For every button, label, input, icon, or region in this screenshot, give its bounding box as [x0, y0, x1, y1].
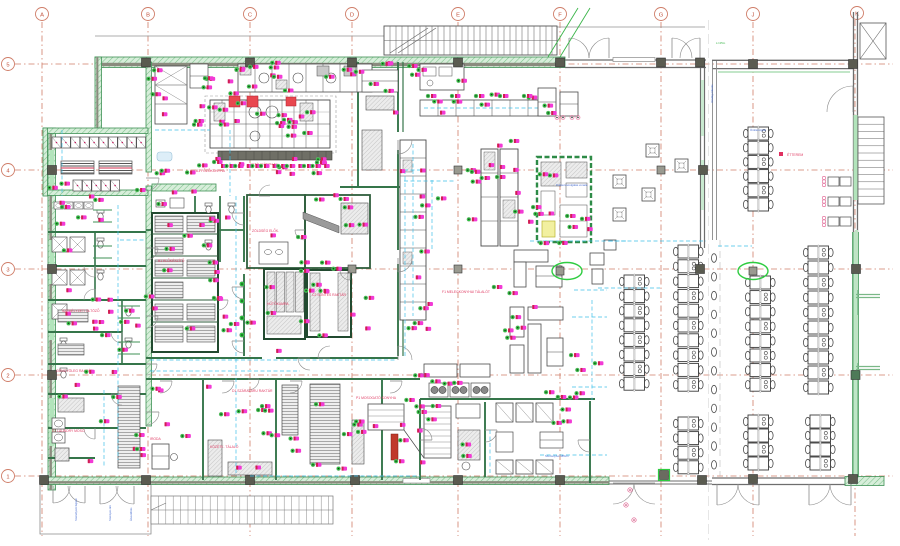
svg-text:1: 1 [6, 474, 9, 480]
svg-text:P1 MOSOGATÓ KONYHA: P1 MOSOGATÓ KONYHA [356, 395, 397, 400]
svg-text:B: B [146, 12, 150, 18]
svg-text:Vendég érkezés: Vendég érkezés [710, 84, 714, 103]
svg-text:3: 3 [6, 267, 9, 273]
svg-text:Pultos kiszolgálás vonala: Pultos kiszolgálás vonala [556, 183, 588, 187]
svg-text:F1 MELEGKONYHAI TÁLALÓT: F1 MELEGKONYHAI TÁLALÓT [442, 289, 490, 294]
svg-text:L=45m: L=45m [716, 41, 726, 45]
svg-text:C: C [248, 12, 252, 18]
svg-text:A: A [40, 12, 44, 18]
svg-text:HŰTŐKAMRA: HŰTŐKAMRA [267, 301, 289, 306]
svg-text:KÖZÉTK. TÁLALÓ: KÖZÉTK. TÁLALÓ [210, 444, 239, 449]
svg-text:Szennyes árú: Szennyes árú [108, 505, 112, 521]
svg-text:IRODA: IRODA [150, 437, 161, 441]
svg-text:E2 LAUNDRY MOSÓ: E2 LAUNDRY MOSÓ [52, 428, 85, 433]
svg-text:ZÖLDSÉG ELŐK.: ZÖLDSÉG ELŐK. [252, 228, 279, 233]
svg-text:D: D [350, 12, 354, 18]
svg-text:ÉTTEREM: ÉTTEREM [787, 152, 803, 157]
svg-text:Személyzeti bejárat: Személyzeti bejárat [74, 498, 78, 521]
svg-text:A1 FŐZŐKONYHA: A1 FŐZŐKONYHA [196, 168, 226, 173]
svg-text:F: F [558, 12, 562, 18]
svg-text:Áruszállítás: Áruszállítás [129, 507, 133, 521]
svg-text:Személyzet 185cm: Személyzet 185cm [545, 454, 569, 458]
svg-text:J: J [752, 12, 755, 18]
svg-text:G: G [659, 12, 664, 18]
svg-text:B1 ELŐKÉSZÍTŐ: B1 ELŐKÉSZÍTŐ [158, 258, 185, 263]
svg-text:2: 2 [6, 373, 9, 379]
svg-text:E: E [456, 12, 460, 18]
svg-text:Önkiszolgáló: Önkiszolgáló [750, 128, 766, 132]
svg-text:D1 SZÁRAZÁRU RAKTÁR: D1 SZÁRAZÁRU RAKTÁR [232, 389, 273, 393]
svg-text:5: 5 [6, 62, 9, 68]
